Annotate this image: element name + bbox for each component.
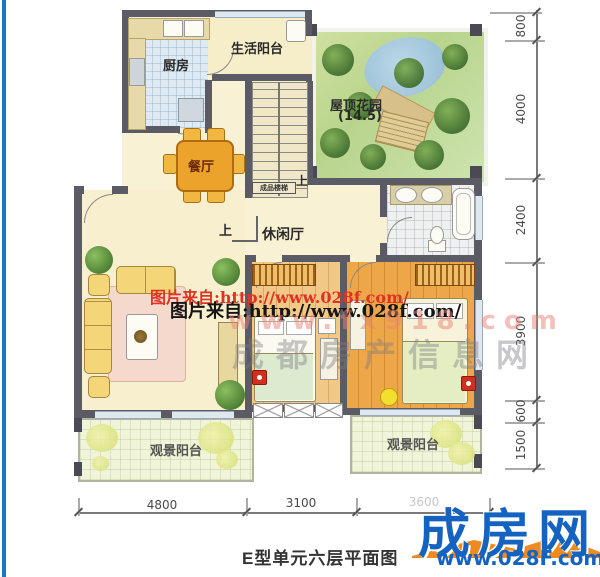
wall-segment (380, 185, 387, 217)
wall-segment (380, 243, 387, 262)
dimension-label-bottom-0: 4800 (142, 498, 182, 512)
balcony-plant (86, 424, 118, 452)
view-balcony-right-label: 观景阳台 (387, 434, 439, 453)
garden-corner-post (470, 24, 482, 36)
balcony-pier (474, 415, 482, 429)
watermark-faint-site: 成都房产信息网 (232, 330, 540, 376)
roof-garden-area-label: (14.5) (338, 109, 382, 124)
dimension-label-right-5: 1500 (514, 423, 530, 467)
floor-lamp (380, 388, 398, 406)
balcony-pier (74, 462, 82, 476)
bathtub-basin (456, 193, 471, 235)
toilet-bowl (430, 226, 444, 244)
bay-window (315, 403, 343, 418)
wall-segment (212, 74, 312, 81)
window (215, 11, 305, 18)
window (360, 409, 460, 416)
stairs-up-label: 上 (296, 172, 308, 189)
sofa (84, 298, 112, 374)
kitchen-sink (184, 20, 204, 37)
table-plant (134, 330, 147, 343)
dimension-label-right-2: 2400 (514, 198, 530, 242)
kitchen-table (178, 98, 204, 122)
plant (215, 380, 245, 410)
extension-line (505, 262, 545, 264)
armchair (88, 274, 110, 296)
wardrobe (415, 264, 475, 286)
view-balcony-left-label: 观景阳台 (150, 440, 202, 459)
wall-segment (205, 80, 212, 133)
leisure-label: 休闲厅 (262, 224, 304, 244)
bathroom-sink (395, 187, 417, 203)
plant (85, 246, 113, 274)
stairs-label-box: 成品楼梯 (252, 182, 296, 194)
wall-segment (74, 190, 82, 418)
dimension-label-right-1: 4000 (514, 87, 530, 131)
wardrobe (252, 264, 316, 286)
wall-segment (112, 186, 128, 194)
bay-window (253, 403, 283, 418)
balcony-pier (74, 418, 82, 432)
armchair (88, 376, 110, 398)
wall-segment (245, 81, 252, 198)
up-arrow-line (256, 216, 258, 242)
balcony-pier (474, 454, 482, 468)
extension-line (505, 178, 545, 180)
logo-url: www.028F.com (436, 546, 600, 570)
page-edge-stripe (2, 0, 6, 577)
plant (212, 258, 240, 286)
window (95, 411, 161, 419)
plan-caption: E型单元六层平面图 (242, 544, 398, 569)
hall-up-label: 上 (219, 220, 232, 239)
bathtub (452, 188, 475, 240)
dining-label: 餐厅 (188, 156, 214, 175)
wall-segment (305, 10, 312, 35)
floor-marker (461, 376, 476, 391)
kitchen-sink (163, 20, 183, 37)
wall-segment (312, 178, 482, 185)
window (475, 196, 483, 240)
bathroom-sink (421, 187, 443, 203)
site-logo: 成房网 www.028F.com (412, 486, 600, 577)
door-opening (256, 255, 282, 262)
balcony-plant (448, 442, 475, 465)
window (172, 411, 234, 419)
garden-corner-post (470, 166, 482, 178)
balcony-plant (92, 456, 109, 471)
washing-machine (286, 20, 306, 42)
kitchen-label: 厨房 (163, 55, 189, 74)
balcony-plant (216, 450, 238, 469)
dimension-label-bottom-1: 3100 (281, 496, 321, 510)
bay-window (284, 403, 314, 418)
dining-chair (163, 154, 177, 174)
floor-plan-image: 厨房 生活阳台 屋顶花园 (14.5) 餐厅 成品楼梯 上 上 休闲厅 观景阳台… (0, 0, 600, 577)
stove (129, 58, 145, 86)
extension-line (505, 468, 545, 470)
living-balcony-label: 生活阳台 (231, 38, 283, 57)
stair-rail (278, 82, 280, 196)
door-opening (350, 255, 376, 262)
dimension-label-right-0: 800 (514, 4, 530, 48)
up-arrow-line (232, 240, 258, 242)
